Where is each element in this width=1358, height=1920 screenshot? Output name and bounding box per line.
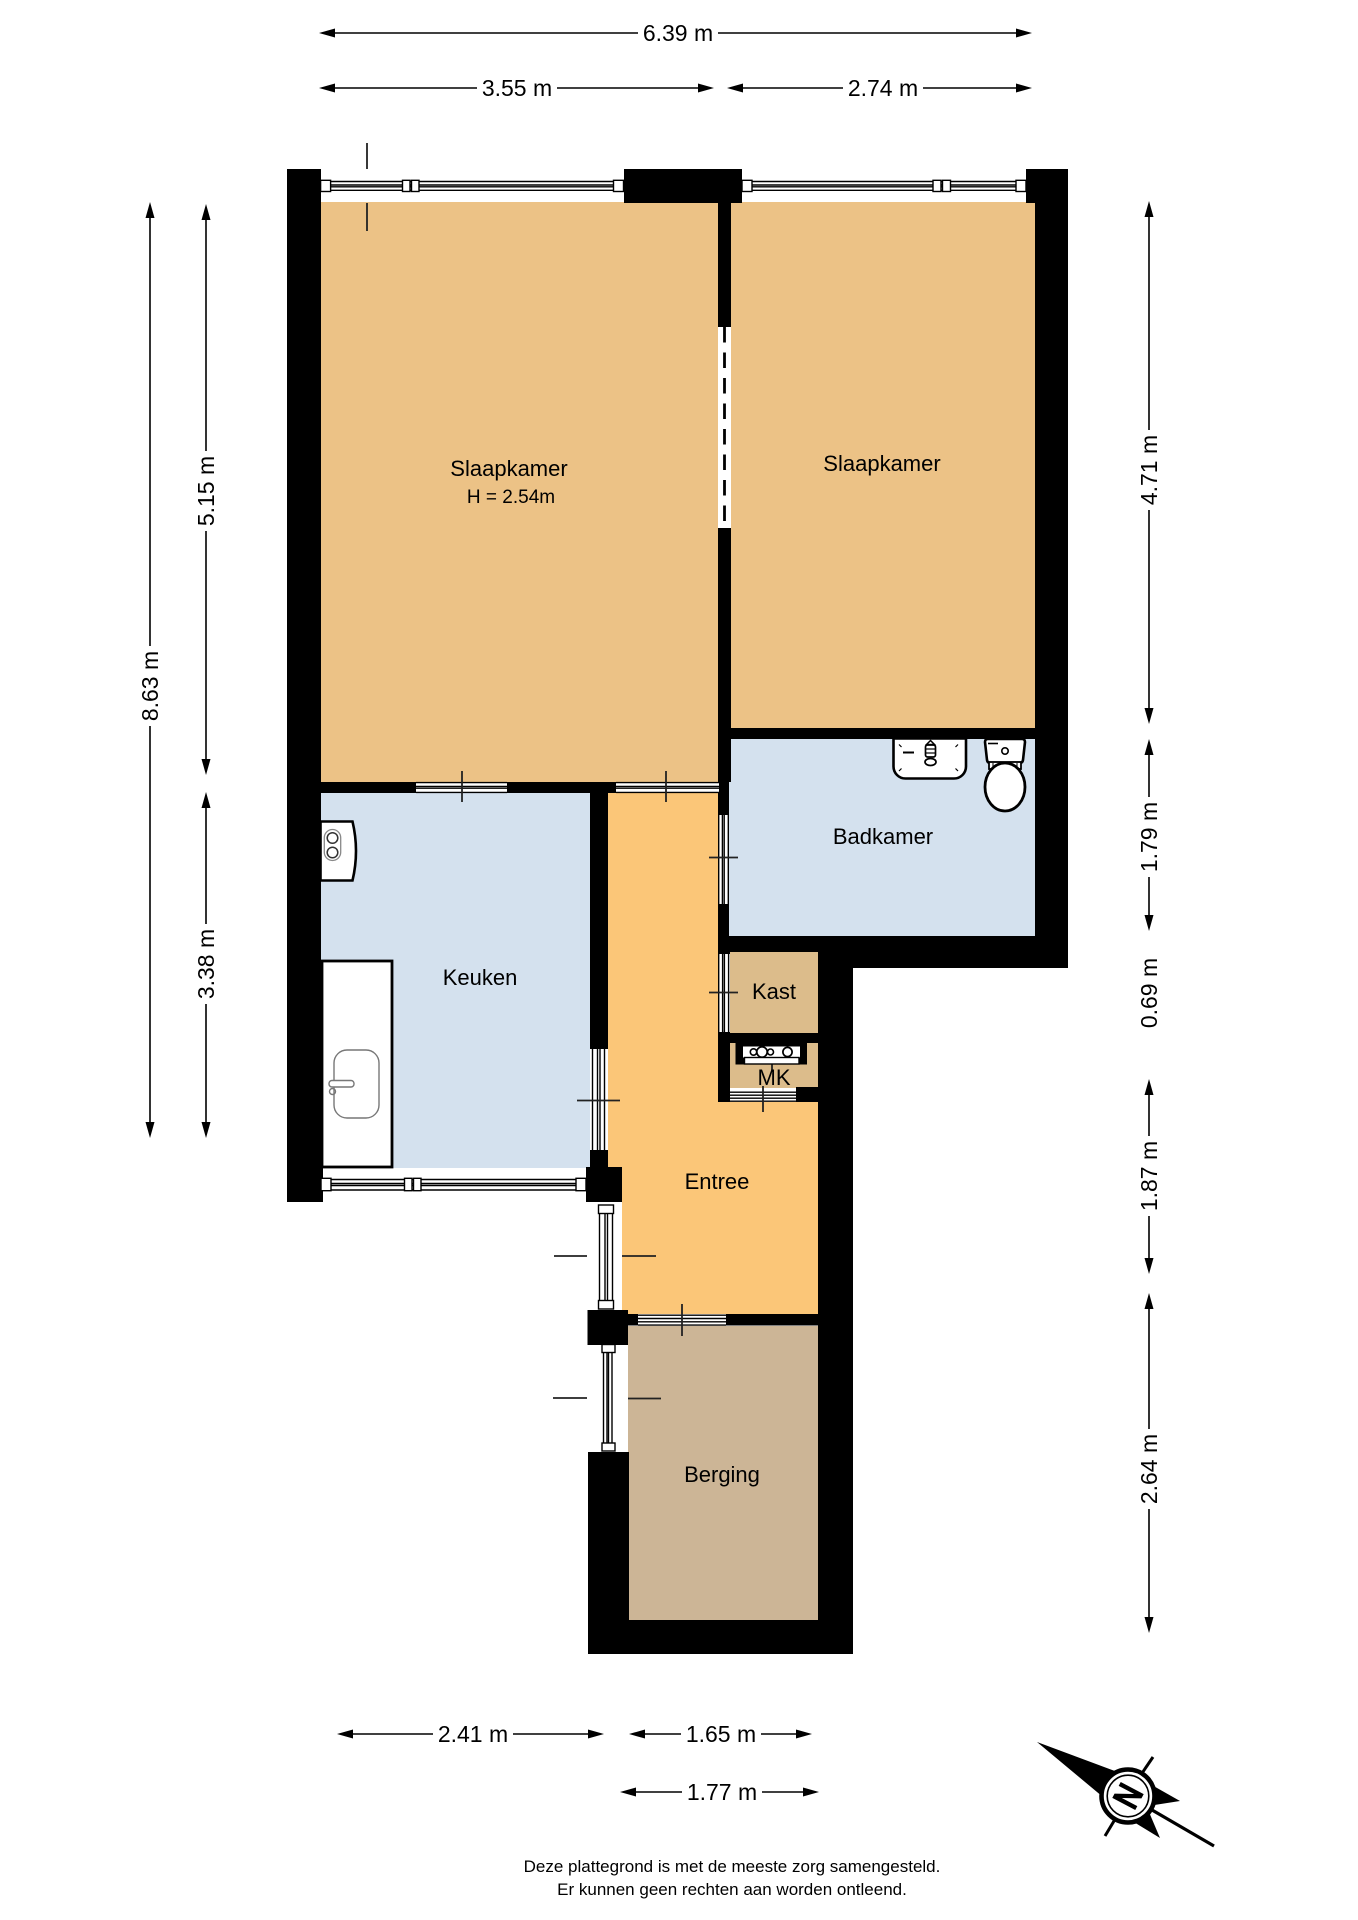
svg-text:6.39 m: 6.39 m: [643, 20, 713, 46]
svg-text:Badkamer: Badkamer: [833, 824, 933, 849]
svg-text:8.63 m: 8.63 m: [137, 651, 163, 721]
svg-text:Berging: Berging: [684, 1462, 760, 1487]
svg-text:Entree: Entree: [685, 1169, 750, 1194]
svg-text:1.65 m: 1.65 m: [686, 1721, 756, 1747]
svg-text:Slaapkamer: Slaapkamer: [450, 456, 567, 481]
svg-text:Deze plattegrond is met de mee: Deze plattegrond is met de meeste zorg s…: [524, 1857, 941, 1876]
svg-text:1.87 m: 1.87 m: [1136, 1141, 1162, 1211]
svg-text:2.74 m: 2.74 m: [848, 75, 918, 101]
svg-text:5.15 m: 5.15 m: [193, 456, 219, 526]
svg-text:1.79 m: 1.79 m: [1136, 802, 1162, 872]
svg-text:4.71 m: 4.71 m: [1136, 435, 1162, 505]
svg-text:2.41 m: 2.41 m: [438, 1721, 508, 1747]
svg-text:Er kunnen geen rechten aan wor: Er kunnen geen rechten aan worden ontlee…: [557, 1880, 907, 1899]
svg-text:MK: MK: [758, 1065, 791, 1090]
svg-text:3.55 m: 3.55 m: [482, 75, 552, 101]
svg-text:Kast: Kast: [752, 979, 796, 1004]
svg-text:0.69 m: 0.69 m: [1136, 958, 1162, 1028]
svg-text:3.38 m: 3.38 m: [193, 929, 219, 999]
svg-text:H = 2.54m: H = 2.54m: [467, 487, 555, 508]
svg-text:Slaapkamer: Slaapkamer: [823, 451, 940, 476]
svg-text:2.64 m: 2.64 m: [1136, 1434, 1162, 1504]
svg-text:Keuken: Keuken: [443, 965, 518, 990]
svg-text:1.77 m: 1.77 m: [687, 1779, 757, 1805]
